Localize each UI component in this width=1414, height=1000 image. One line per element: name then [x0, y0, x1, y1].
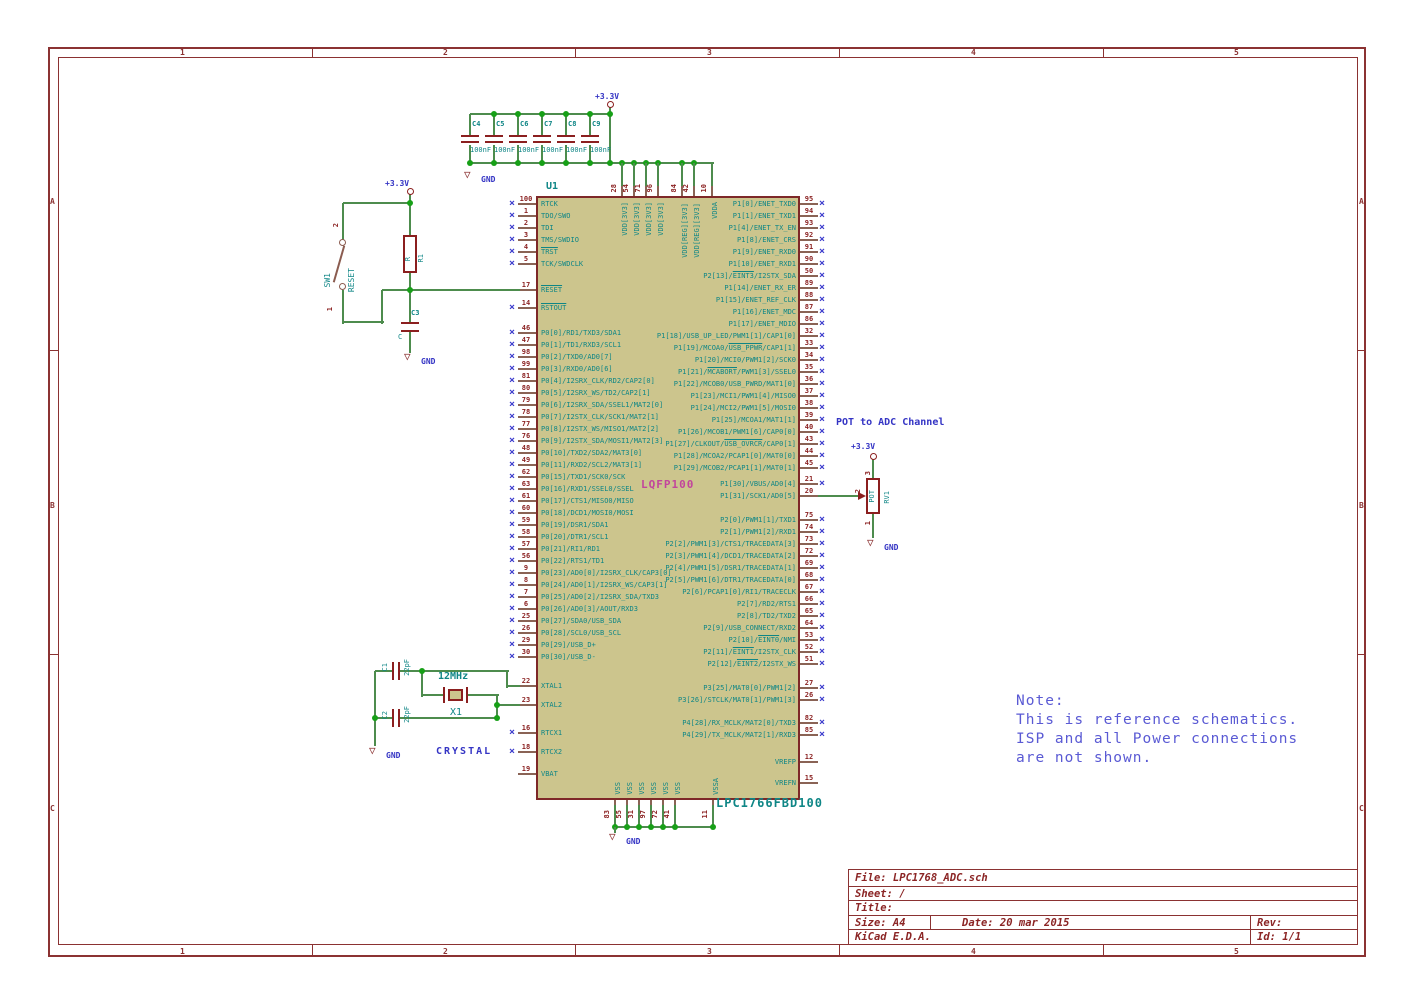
capacitor-plate [533, 141, 551, 143]
pin-name: P1[23]/MCI1/PWM1[4]/MISO0 [691, 392, 796, 400]
gnd-symbol: ▽ [369, 745, 376, 756]
pin-name: RTCK [541, 200, 558, 208]
no-connect-icon: × [509, 211, 515, 221]
pin-name: P2[6]/PCAP1[0]/RI1/TRACECLK [682, 588, 796, 596]
pin-stub [518, 524, 536, 526]
capacitor-plate [398, 709, 400, 727]
v33-label: +3.3V [385, 179, 409, 188]
pin-name: P0[5]/I2SRX_WS/TD2/CAP2[1] [541, 389, 651, 397]
frame-row-label: A [50, 197, 55, 206]
pin-name: TMS/SWDIO [541, 236, 579, 244]
pin-name: P0[23]/AD0[0]/I2SRX_CLK/CAP3[0] [541, 569, 672, 577]
pin-number: 18 [516, 743, 536, 751]
wire [872, 514, 874, 538]
no-connect-icon: × [819, 551, 825, 561]
pin-name: P0[1]/TD1/RXD3/SCL1 [541, 341, 621, 349]
pin-number: 5 [516, 255, 536, 263]
v33-label: +3.3V [851, 442, 875, 451]
wire [565, 114, 567, 137]
pin-name: P1[0]/ENET_TXD0 [733, 200, 796, 208]
pin-number: 9 [516, 564, 536, 572]
no-connect-icon: × [819, 331, 825, 341]
pin-stub [800, 722, 818, 724]
pin-number: 6 [516, 600, 536, 608]
v33-label: +3.3V [595, 92, 619, 101]
pin-name: P1[18]/USB_UP_LED/PWM1[1]/CAP1[0] [657, 332, 796, 340]
pot-pin-number: 3 [864, 471, 873, 475]
pin-number: 72 [800, 547, 818, 555]
pin-name: P4[28]/RX_MCLK/MAT2[0]/TXD3 [682, 719, 796, 727]
pin-stub [800, 371, 818, 373]
pin-stub [800, 275, 818, 277]
frame-tick [1358, 654, 1366, 655]
pin-number: 12 [800, 753, 818, 761]
no-connect-icon: × [819, 479, 825, 489]
pin-name: P1[17]/ENET_MDIO [729, 320, 796, 328]
capacitor-value: 100nF [518, 146, 539, 154]
pin-name: P1[4]/ENET_TX_EN [729, 224, 796, 232]
frame-tick [1103, 47, 1104, 57]
pin-stub [518, 632, 536, 634]
no-connect-icon: × [819, 718, 825, 728]
frame-column-label: 4 [971, 48, 976, 57]
pin-number: 26 [800, 691, 818, 699]
pin-number: 78 [516, 408, 536, 416]
capacitor-plate [533, 135, 551, 137]
pin-name: P2[0]/PWM1[1]/TXD1 [720, 516, 796, 524]
pin-number: 73 [800, 535, 818, 543]
pin-stub [800, 603, 818, 605]
pin-number: 33 [800, 339, 818, 347]
no-connect-icon: × [509, 496, 515, 506]
pin-number: 91 [800, 243, 818, 251]
pin-stub [800, 639, 818, 641]
crystal-ref: X1 [450, 707, 462, 718]
pin-stub [711, 186, 713, 196]
pin-stub [518, 512, 536, 514]
pin-stub [800, 383, 818, 385]
pin-number: 35 [800, 363, 818, 371]
frame-tick [1103, 945, 1104, 957]
pin-name: P1[25]/MCOA1/MAT1[1] [712, 416, 796, 424]
pin-stub [518, 751, 536, 753]
pin-name: P0[29]/USB_D+ [541, 641, 596, 649]
no-connect-icon: × [819, 307, 825, 317]
pin-name: P1[14]/ENET_RX_ER [724, 284, 796, 292]
pin-number: 54 [622, 184, 631, 192]
pin-stub [800, 299, 818, 301]
no-connect-icon: × [509, 340, 515, 350]
gnd-symbol: ▽ [404, 351, 411, 362]
wire [342, 290, 344, 324]
junction-dot [624, 824, 630, 830]
no-connect-icon: × [819, 599, 825, 609]
pin-name: P2[9]/USB_CONNECT/RXD2 [703, 624, 796, 632]
junction-dot [672, 824, 678, 830]
junction-dot [372, 715, 378, 721]
frame-column-label: 5 [1234, 947, 1239, 956]
pin-number: 32 [800, 327, 818, 335]
wire [469, 114, 471, 137]
capacitor-plate [581, 135, 599, 137]
pin-stub [693, 186, 695, 196]
pin-stub [518, 251, 536, 253]
pin-name: P2[4]/PWM1[5]/DSR1/TRACEDATA[1] [665, 564, 796, 572]
no-connect-icon: × [509, 223, 515, 233]
pin-stub [518, 452, 536, 454]
v33-symbol [407, 188, 414, 195]
schematic-layer: C4100nFC5100nFC6100nFC7100nFC8100nFC9100… [0, 0, 1414, 1000]
pin-number: 100 [516, 195, 536, 203]
pin-stub [800, 431, 818, 433]
pot-pin-number: 1 [864, 521, 873, 525]
no-connect-icon: × [819, 730, 825, 740]
pin-number: 79 [516, 396, 536, 404]
pin-number: 55 [615, 810, 624, 818]
pin-name: P0[28]/SCL0/USB_SCL [541, 629, 621, 637]
capacitor-ref: C1 [381, 663, 390, 671]
wire [493, 114, 495, 137]
no-connect-icon: × [819, 415, 825, 425]
pin-number: 66 [800, 595, 818, 603]
pot-pin-number: 2 [854, 489, 863, 493]
v33-symbol [870, 453, 877, 460]
pin-stub [800, 347, 818, 349]
pin-number: 93 [800, 219, 818, 227]
pin-number: 51 [800, 655, 818, 663]
frame-tick [575, 47, 576, 57]
pin-stub [518, 307, 536, 309]
no-connect-icon: × [819, 343, 825, 353]
pin-name: P1[24]/MCI2/PWM1[5]/MOSI0 [691, 404, 796, 412]
no-connect-icon: × [509, 448, 515, 458]
no-connect-icon: × [509, 352, 515, 362]
frame-tick [839, 945, 840, 957]
pin-name: RSTOUT [541, 304, 566, 312]
pin-name: P1[20]/MCI0/PWM1[2]/SCK0 [695, 356, 796, 364]
capacitor-plate [557, 141, 575, 143]
pin-name: VDDA [711, 202, 720, 219]
pin-stub [800, 615, 818, 617]
frame-tick [48, 350, 58, 351]
pin-number: 25 [516, 612, 536, 620]
no-connect-icon: × [509, 728, 515, 738]
pin-stub [800, 335, 818, 337]
capacitor-plate [392, 662, 394, 680]
pin-number: 98 [516, 348, 536, 356]
pin-name: P0[17]/CTS1/MISO0/MISO [541, 497, 634, 505]
no-connect-icon: × [819, 199, 825, 209]
pin-number: 45 [800, 459, 818, 467]
capacitor-plate [509, 141, 527, 143]
no-connect-icon: × [819, 527, 825, 537]
pin-name: TDI [541, 224, 554, 232]
pin-stub [800, 567, 818, 569]
junction-dot [607, 111, 613, 117]
pin-number: 29 [516, 636, 536, 644]
no-connect-icon: × [509, 580, 515, 590]
frame-row-label: C [1359, 804, 1364, 813]
pin-number: 15 [800, 774, 818, 782]
pin-name: VSS [674, 782, 683, 795]
pin-name: P4[29]/TX_MCLK/MAT2[1]/RXD3 [682, 731, 796, 739]
gnd-symbol: ▽ [609, 831, 616, 842]
pin-number: 90 [800, 255, 818, 263]
pin-stub [800, 287, 818, 289]
pin-number: 30 [516, 648, 536, 656]
no-connect-icon: × [819, 379, 825, 389]
junction-dot [660, 824, 666, 830]
wire [872, 459, 874, 480]
pin-number: 85 [800, 726, 818, 734]
pin-stub [800, 263, 818, 265]
pin-name: P0[2]/TXD0/AD0[7] [541, 353, 613, 361]
pin-number: 47 [516, 336, 536, 344]
no-connect-icon: × [509, 247, 515, 257]
pin-number: 77 [516, 420, 536, 428]
junction-dot [491, 111, 497, 117]
pin-name: P0[19]/DSR1/SDA1 [541, 521, 608, 529]
no-connect-icon: × [509, 556, 515, 566]
no-connect-icon: × [819, 695, 825, 705]
pin-number: 71 [634, 184, 643, 192]
pin-number: 69 [800, 559, 818, 567]
pin-number: 86 [800, 315, 818, 323]
no-connect-icon: × [819, 367, 825, 377]
pin-number: 92 [800, 231, 818, 239]
pin-number: 23 [516, 696, 536, 704]
pin-stub [800, 395, 818, 397]
resistor-ref: R1 [417, 254, 426, 262]
pin-number: 65 [800, 607, 818, 615]
no-connect-icon: × [819, 295, 825, 305]
wire [541, 114, 543, 137]
no-connect-icon: × [509, 544, 515, 554]
no-connect-icon: × [819, 247, 825, 257]
junction-dot [494, 702, 500, 708]
capacitor-value: 100nF [590, 146, 611, 154]
wire [343, 202, 412, 204]
pin-stub [800, 651, 818, 653]
junction-dot [648, 824, 654, 830]
wire [342, 203, 344, 242]
pin-number: 76 [516, 432, 536, 440]
pin-stub [800, 663, 818, 665]
pin-number: 28 [610, 184, 619, 192]
capacitor-plate [401, 322, 419, 324]
pin-name: RTCX2 [541, 748, 562, 756]
pin-name: P0[11]/RXD2/SCL2/MAT3[1] [541, 461, 642, 469]
pin-number: 64 [800, 619, 818, 627]
pin-number: 11 [701, 810, 710, 818]
capacitor-value: 100nF [542, 146, 563, 154]
capacitor-ref: C9 [592, 120, 600, 128]
pin-name: P1[31]/SCK1/AD0[5] [720, 492, 796, 500]
pin-stub [800, 734, 818, 736]
wire [382, 289, 520, 291]
pin-number: 67 [800, 583, 818, 591]
pin-number: 84 [670, 184, 679, 192]
wire [343, 321, 384, 323]
no-connect-icon: × [819, 259, 825, 269]
pin-number: 87 [800, 303, 818, 311]
capacitor-plate [581, 141, 599, 143]
pin-number: 39 [800, 411, 818, 419]
no-connect-icon: × [819, 223, 825, 233]
pin-stub [518, 440, 536, 442]
no-connect-icon: × [819, 283, 825, 293]
frame-column-label: 1 [180, 48, 185, 57]
pin-name: P0[26]/AD0[3]/AOUT/RXD3 [541, 605, 638, 613]
pin-name: P2[5]/PWM1[6]/DTR1/TRACEDATA[0] [665, 576, 796, 584]
wire [818, 495, 862, 497]
pin-stub [800, 519, 818, 521]
pin-number: 97 [639, 810, 648, 818]
pin-stub [800, 687, 818, 689]
wire [422, 694, 445, 696]
pin-stub [518, 428, 536, 430]
no-connect-icon: × [819, 611, 825, 621]
pin-stub [518, 263, 536, 265]
frame-column-label: 3 [707, 48, 712, 57]
pin-number: 34 [800, 351, 818, 359]
capacitor-value: 100nF [566, 146, 587, 154]
pin-name: P1[19]/MCOA0/USB_PPWR/CAP1[1] [674, 344, 796, 352]
pot-ref: RV1 [883, 491, 892, 504]
pin-stub [518, 332, 536, 334]
pin-stub [800, 555, 818, 557]
pin-number: 44 [800, 447, 818, 455]
pin-number: 43 [800, 435, 818, 443]
no-connect-icon: × [509, 328, 515, 338]
pin-name: P1[28]/MCOA2/PCAP1[0]/MAT0[0] [674, 452, 796, 460]
pin-number: 59 [516, 516, 536, 524]
wire [589, 114, 591, 137]
pin-stub [800, 443, 818, 445]
junction-dot [710, 824, 716, 830]
gnd-label: GND [626, 837, 640, 846]
pin-number: 62 [516, 468, 536, 476]
no-connect-icon: × [819, 515, 825, 525]
pin-number: 99 [516, 360, 536, 368]
pin-stub [800, 495, 818, 497]
pin-stub [800, 251, 818, 253]
no-connect-icon: × [819, 391, 825, 401]
pin-number: 58 [516, 528, 536, 536]
pin-number: 52 [800, 643, 818, 651]
junction-dot [467, 160, 473, 166]
junction-dot [515, 111, 521, 117]
pin-name: VSS [626, 782, 635, 795]
pin-number: 82 [800, 714, 818, 722]
pin-name: RTCX1 [541, 729, 562, 737]
pin-stub [518, 239, 536, 241]
gnd-symbol: ▽ [867, 537, 874, 548]
switch-lever [333, 245, 345, 282]
no-connect-icon: × [509, 604, 515, 614]
pin-name: VDD[REG][3V3] [681, 203, 690, 258]
wire [507, 685, 520, 687]
pin-name: VSSA [712, 778, 721, 795]
pin-name: P0[10]/TXD2/SDA2/MAT3[0] [541, 449, 642, 457]
pin-name: P0[7]/I2STX_CLK/SCK1/MAT2[1] [541, 413, 659, 421]
no-connect-icon: × [819, 403, 825, 413]
junction-dot [607, 160, 613, 166]
pin-name: P2[11]/EINT1/I2STX_CLK [703, 648, 796, 656]
junction-dot [563, 111, 569, 117]
pin-number: 42 [682, 184, 691, 192]
capacitor-ref: C6 [520, 120, 528, 128]
pin-stub [518, 500, 536, 502]
pin-name: P0[22]/RTS1/TD1 [541, 557, 604, 565]
no-connect-icon: × [509, 484, 515, 494]
pin-stub [518, 368, 536, 370]
pin-name: P2[8]/TD2/TXD2 [737, 612, 796, 620]
pin-number: 27 [800, 679, 818, 687]
pin-name: VBAT [541, 770, 558, 778]
pin-number: 7 [516, 588, 536, 596]
no-connect-icon: × [819, 587, 825, 597]
no-connect-icon: × [509, 616, 515, 626]
pin-name: P1[15]/ENET_REF_CLK [716, 296, 796, 304]
pin-stub [800, 531, 818, 533]
pin-stub [800, 311, 818, 313]
pin-number: 17 [516, 281, 536, 289]
frame-tick [48, 654, 58, 655]
pin-stub [800, 782, 818, 784]
no-connect-icon: × [509, 532, 515, 542]
switch-value: RESET [347, 268, 356, 292]
frame-tick [575, 945, 576, 957]
pin-name: TCK/SWDCLK [541, 260, 583, 268]
no-connect-icon: × [509, 628, 515, 638]
junction-dot [491, 160, 497, 166]
pin-number: 14 [516, 299, 536, 307]
pin-stub [518, 656, 536, 658]
pin-stub [518, 416, 536, 418]
junction-dot [563, 160, 569, 166]
no-connect-icon: × [509, 747, 515, 757]
capacitor-plate [485, 135, 503, 137]
pin-number: 38 [800, 399, 818, 407]
pin-stub [518, 356, 536, 358]
pin-name: P3[26]/STCLK/MAT0[1]/PWM1[3] [678, 696, 796, 704]
pin-number: 41 [663, 810, 672, 818]
pin-number: 94 [800, 207, 818, 215]
no-connect-icon: × [819, 235, 825, 245]
pin-number: 56 [516, 552, 536, 560]
no-connect-icon: × [819, 463, 825, 473]
capacitor-value: 22pF [403, 706, 412, 723]
no-connect-icon: × [819, 563, 825, 573]
no-connect-icon: × [819, 355, 825, 365]
capacitor-value: C [398, 333, 402, 341]
gnd-label: GND [421, 357, 435, 366]
pin-stub [518, 620, 536, 622]
no-connect-icon: × [819, 623, 825, 633]
pin-name: TDO/SWO [541, 212, 571, 220]
pin-number: 46 [516, 324, 536, 332]
pin-name: P0[4]/I2SRX_CLK/RD2/CAP2[0] [541, 377, 655, 385]
pin-stub [518, 464, 536, 466]
pin-name: P0[30]/USB_D- [541, 653, 596, 661]
capacitor-value: 100nF [470, 146, 491, 154]
junction-dot [539, 160, 545, 166]
pin-stub [800, 591, 818, 593]
frame-tick [312, 945, 313, 957]
pin-stub [518, 560, 536, 562]
pin-name: P3[25]/MAT0[0]/PWM1[2] [703, 684, 796, 692]
